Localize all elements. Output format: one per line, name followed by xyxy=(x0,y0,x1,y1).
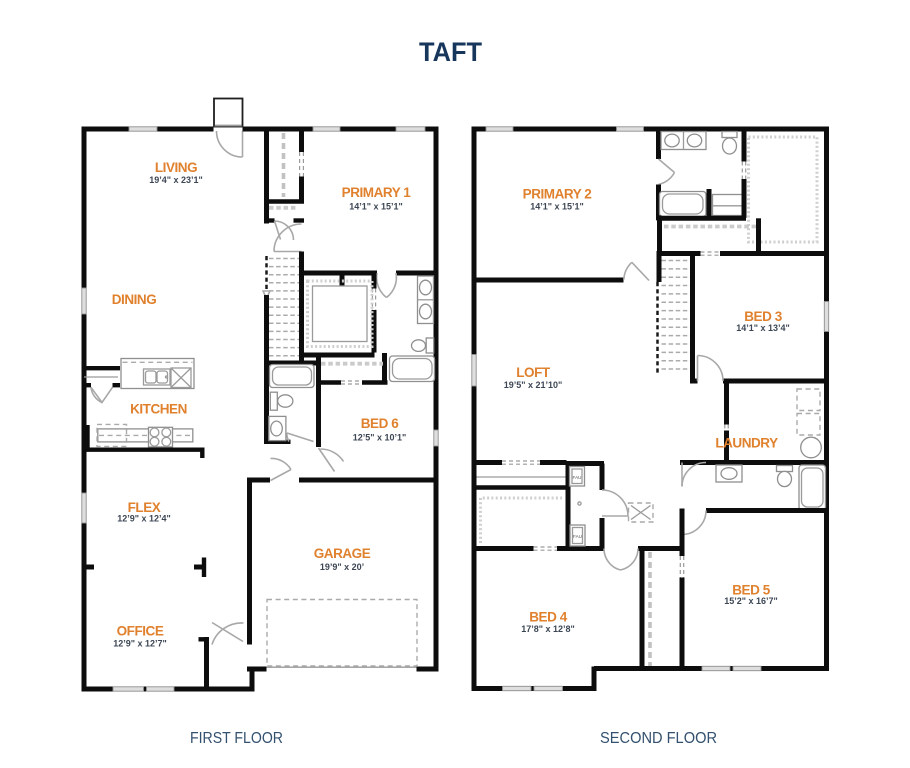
svg-text:FAU: FAU xyxy=(573,475,582,480)
svg-text:12’9" x 12’7": 12’9" x 12’7" xyxy=(113,639,167,649)
svg-text:SECOND FLOOR: SECOND FLOOR xyxy=(600,730,717,747)
svg-text:19’5" x 21’10": 19’5" x 21’10" xyxy=(504,380,563,390)
svg-text:BED 4: BED 4 xyxy=(529,610,567,625)
svg-text:BED 3: BED 3 xyxy=(744,309,782,324)
svg-text:12’9" x 12’4": 12’9" x 12’4" xyxy=(117,514,171,524)
svg-text:12’5" x 10’1": 12’5" x 10’1" xyxy=(353,433,407,443)
svg-text:19’4" x 23’1": 19’4" x 23’1" xyxy=(149,175,203,185)
svg-text:PRIMARY 2: PRIMARY 2 xyxy=(523,187,592,202)
svg-text:TAFT: TAFT xyxy=(419,37,482,67)
svg-text:17’8" x 12’8": 17’8" x 12’8" xyxy=(521,624,575,634)
svg-text:14’1" x 15’1": 14’1" x 15’1" xyxy=(349,202,403,212)
svg-text:15’2" x 16’7": 15’2" x 16’7" xyxy=(724,596,778,606)
svg-text:14’1" x 13’4": 14’1" x 13’4" xyxy=(736,323,790,333)
svg-text:KITCHEN: KITCHEN xyxy=(130,402,187,417)
svg-text:OFFICE: OFFICE xyxy=(117,624,164,639)
svg-text:LAUNDRY: LAUNDRY xyxy=(715,436,778,451)
svg-text:FIRST FLOOR: FIRST FLOOR xyxy=(190,730,283,747)
svg-text:14’1" x 15’1": 14’1" x 15’1" xyxy=(530,202,584,212)
svg-text:BED 6: BED 6 xyxy=(361,416,399,431)
svg-text:LOFT: LOFT xyxy=(516,365,551,380)
svg-text:LIVING: LIVING xyxy=(155,160,197,175)
svg-text:DINING: DINING xyxy=(112,292,157,307)
svg-text:19’9" x 20’: 19’9" x 20’ xyxy=(320,562,364,572)
svg-text:PRIMARY 1: PRIMARY 1 xyxy=(342,185,412,200)
svg-text:FAU: FAU xyxy=(573,534,582,539)
svg-text:GARAGE: GARAGE xyxy=(314,546,371,561)
